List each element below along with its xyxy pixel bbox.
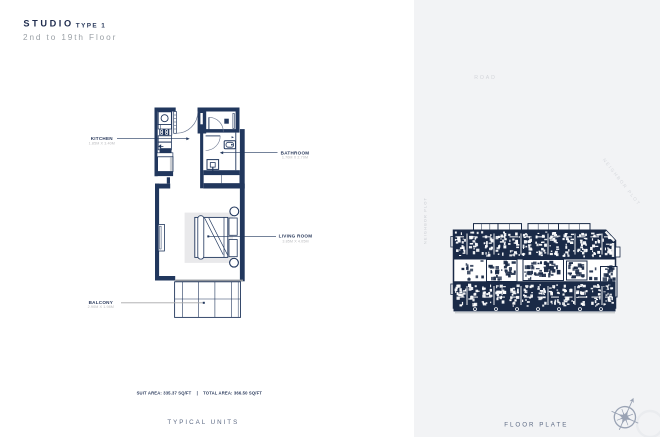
svg-text:TYPE 1: TYPE 1 (76, 22, 106, 29)
svg-text:TYPICAL UNITS: TYPICAL UNITS (167, 419, 239, 426)
svg-text:LIVING ROOM: LIVING ROOM (279, 234, 313, 239)
svg-text:STUDIO: STUDIO (23, 19, 73, 29)
svg-text:3.85M X 4.05M: 3.85M X 4.05M (282, 240, 308, 244)
svg-text:1.85M X 3.40M: 1.85M X 3.40M (89, 141, 115, 145)
svg-text:FLOOR PLATE: FLOOR PLATE (504, 421, 568, 428)
svg-text:2nd to 19th Floor: 2nd to 19th Floor (23, 33, 117, 42)
svg-text:1.70M X 2.70M: 1.70M X 2.70M (282, 156, 308, 160)
svg-text:ROAD: ROAD (474, 75, 497, 81)
svg-text:SUIT AREA: 335.37 SQ/FT |: SUIT AREA: 335.37 SQ/FT | TOTAL AREA: 36… (137, 390, 263, 395)
svg-text:NEIGHBOR PLOT: NEIGHBOR PLOT (423, 197, 428, 244)
svg-text:2.90M X 1.98M: 2.90M X 1.98M (88, 305, 114, 309)
